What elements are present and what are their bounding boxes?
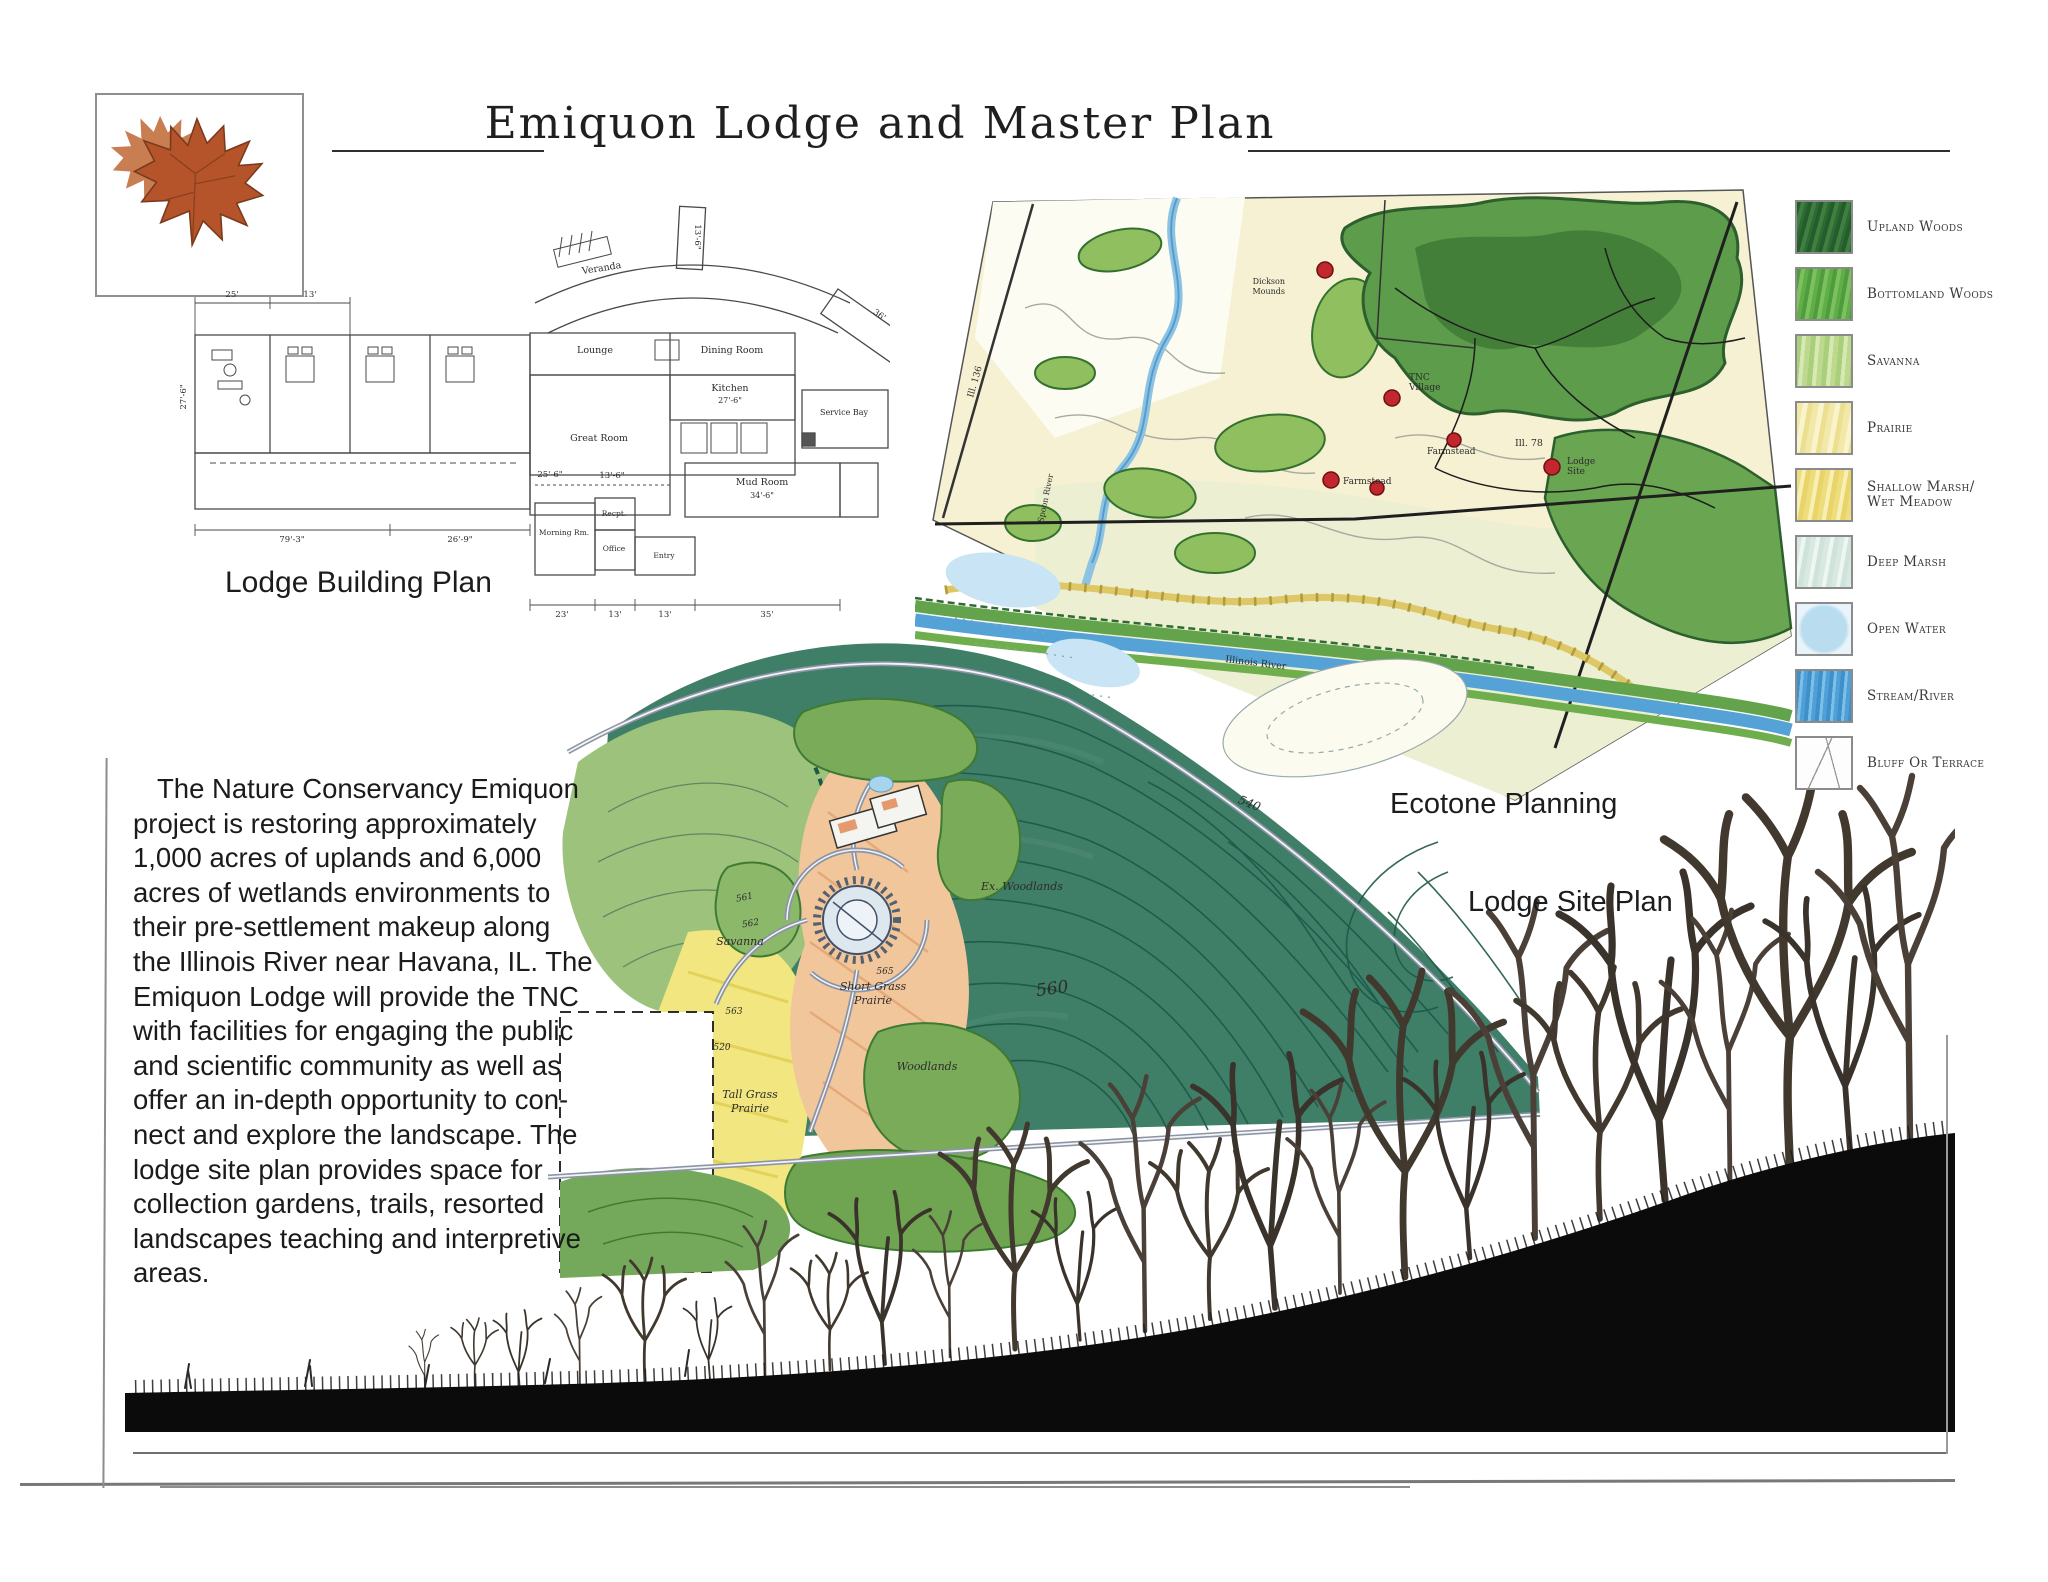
- legend-label: Stream/River: [1867, 689, 1954, 704]
- building-plan-dims: 25' 13' 13'-6" 36' 25'-6" 13'-6" 26'-9" …: [179, 224, 887, 620]
- label-dickson-2: Mounds: [1252, 287, 1285, 296]
- legend-label: Bottomland Woods: [1867, 287, 1993, 302]
- dim-27-6-side: 27'-6": [179, 384, 189, 409]
- legend-row-bottomland-woods: Bottomland Woods: [1795, 267, 2045, 321]
- legend-label: Savanna: [1867, 354, 1920, 369]
- legend-label: Bluff Or Terrace: [1867, 756, 1984, 771]
- mud-room-dim: 34'-6": [750, 491, 774, 500]
- caption-lodge-site-plan: Lodge Site Plan: [1468, 886, 1673, 919]
- dot-lodge-site: [1544, 459, 1560, 475]
- legend-row-upland-woods: Upland Woods: [1795, 200, 2045, 254]
- title-rule-right: [1248, 150, 1950, 152]
- page-title: Emiquon Lodge and Master Plan: [425, 98, 1335, 149]
- room-label-recpt: Recpt.: [602, 509, 627, 518]
- room-label-great-room: Great Room: [570, 433, 628, 444]
- legend-label: Shallow Marsh/ Wet Meadow: [1867, 480, 1975, 510]
- inner-border-bottom: [133, 1452, 1948, 1454]
- dot-tnc-village: [1384, 390, 1400, 406]
- dot-farmstead-2: [1323, 472, 1339, 488]
- label-farmstead-2: Farmstead: [1343, 477, 1392, 487]
- legend-label: Open Water: [1867, 622, 1946, 637]
- legend-swatch-bottomland-woods: [1795, 267, 1853, 321]
- title-rule-left: [332, 150, 544, 152]
- dim-13-6-top: 13'-6": [692, 224, 702, 249]
- legend-label: Deep Marsh: [1867, 555, 1946, 570]
- sketch-border-bottom: [20, 1479, 1955, 1486]
- legend-swatch-upland-woods: [1795, 200, 1853, 254]
- room-label-mud-room: Mud Room: [736, 477, 789, 488]
- legend-swatch-savanna: [1795, 334, 1853, 388]
- dot-farmstead-1: [1447, 433, 1461, 447]
- legend-row-savanna: Savanna: [1795, 334, 2045, 388]
- legend-swatch-shallow-marsh: [1795, 468, 1853, 522]
- label-lodge: Lodge: [1567, 457, 1595, 467]
- dim-79-3: 79'-3": [279, 535, 304, 545]
- dot-dickson-mounds: [1317, 262, 1333, 278]
- label-village: Village: [1408, 383, 1440, 393]
- project-description: The Nature Conservancy Emiquon project i…: [133, 772, 603, 1291]
- legend-swatch-deep-marsh: [1795, 535, 1853, 589]
- legend-swatch-stream-river: [1795, 669, 1853, 723]
- label-dickson-1: Dickson: [1253, 277, 1285, 286]
- dim-13: 13': [303, 290, 316, 300]
- room-label-office: Office: [603, 544, 626, 553]
- room-label-kitchen: Kitchen: [711, 383, 748, 394]
- dim-25: 25': [225, 290, 238, 300]
- dim-13-6: 13'-6": [599, 471, 624, 481]
- inner-border-right: [1946, 1035, 1948, 1454]
- caption-ecotone-planning: Ecotone Planning: [1390, 788, 1617, 821]
- legend-row-deep-marsh: Deep Marsh: [1795, 535, 2045, 589]
- label-farmstead-1: Farmstead: [1427, 447, 1476, 457]
- legend-swatch-bluff-terrace: [1795, 736, 1853, 790]
- sketch-border-left: [102, 758, 107, 1488]
- portfolio-page: Emiquon Lodge and Master Plan: [0, 0, 2048, 1582]
- sketch-border-bottom-2: [160, 1486, 1410, 1488]
- legend-swatch-open-water: [1795, 602, 1853, 656]
- legend-row-open-water: Open Water: [1795, 602, 2045, 656]
- legend-row-prairie: Prairie: [1795, 401, 2045, 455]
- ecotone-legend: Upland Woods Bottomland Woods Savanna Pr…: [1795, 200, 2045, 790]
- legend-swatch-prairie: [1795, 401, 1853, 455]
- kitchen-dim: 27'-6": [718, 396, 742, 405]
- legend-row-stream-river: Stream/River: [1795, 669, 2045, 723]
- room-label-dining: Dining Room: [701, 345, 764, 356]
- legend-row-shallow-marsh: Shallow Marsh/ Wet Meadow: [1795, 468, 2045, 522]
- label-site: Site: [1567, 467, 1585, 477]
- dim-26-9: 26'-9": [447, 535, 472, 545]
- legend-label: Upland Woods: [1867, 220, 1963, 235]
- room-label-lounge: Lounge: [577, 345, 613, 356]
- caption-lodge-building-plan: Lodge Building Plan: [225, 566, 492, 600]
- room-label-veranda: Veranda: [580, 260, 622, 277]
- room-label-morning: Morning Rm.: [539, 528, 589, 537]
- legend-label: Prairie: [1867, 421, 1913, 436]
- dim-25-6: 25'-6": [537, 470, 562, 480]
- room-label-service-bay: Service Bay: [820, 408, 869, 417]
- room-label-entry: Entry: [653, 551, 675, 560]
- label-tnc: TNC: [1409, 373, 1430, 383]
- label-ill-78: Ill. 78: [1515, 438, 1543, 449]
- legend-row-bluff-terrace: Bluff Or Terrace: [1795, 736, 2045, 790]
- dim-36: 36': [871, 307, 888, 323]
